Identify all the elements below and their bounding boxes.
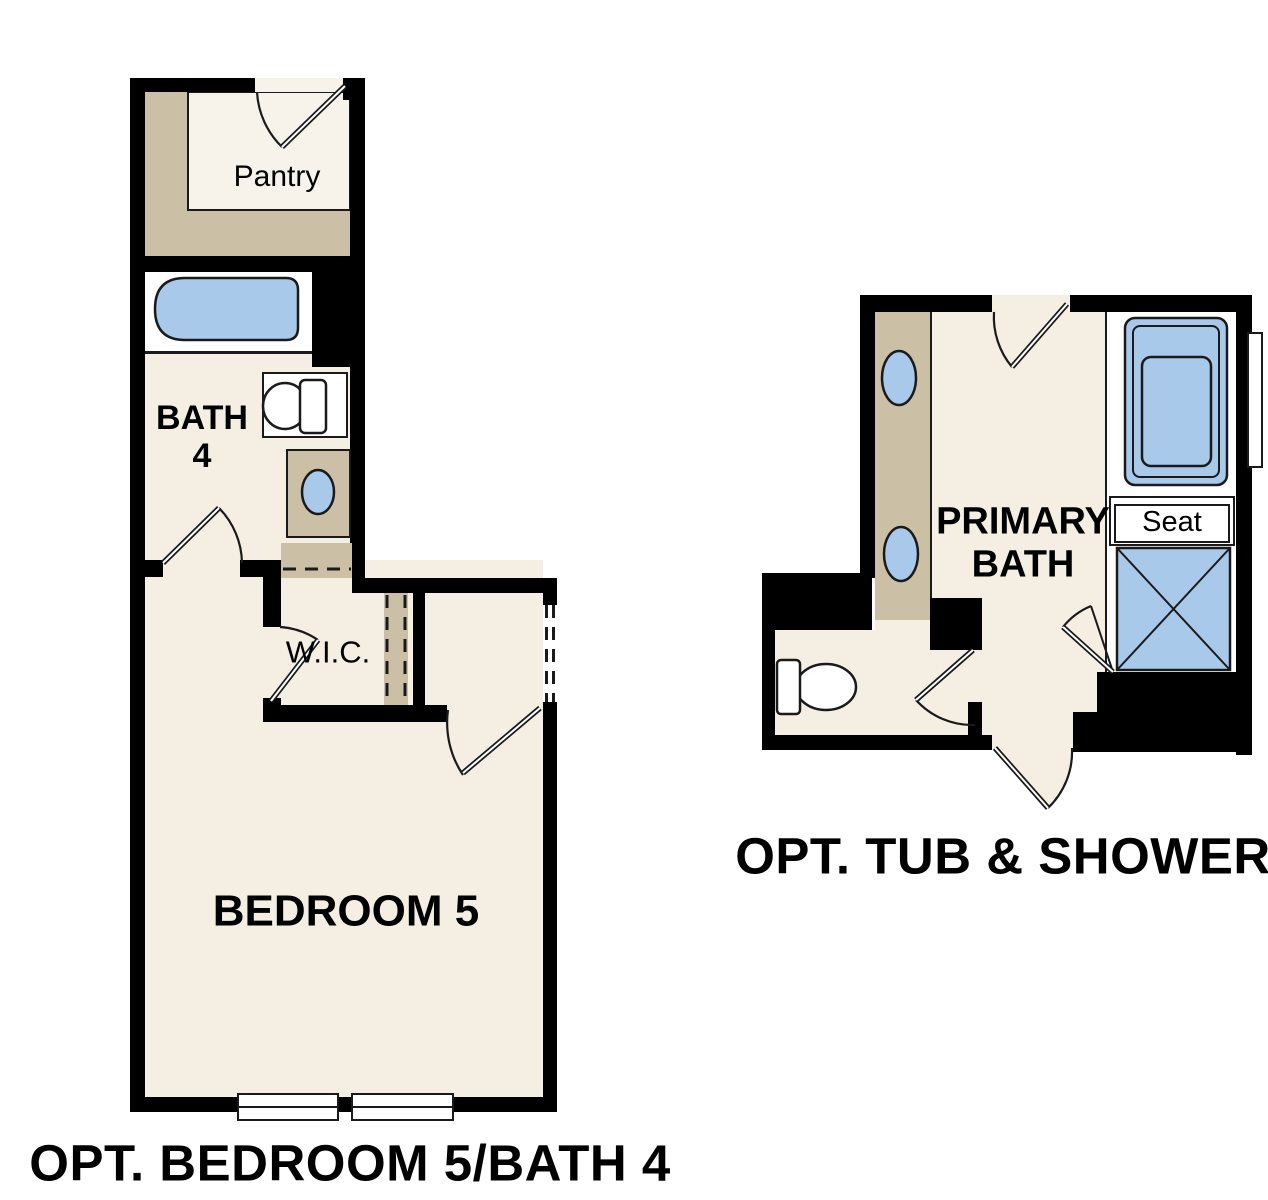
cased-opening (543, 605, 557, 702)
primary-bath-label: PRIMARY BATH (936, 500, 1110, 585)
floorplan-drawing (0, 0, 1268, 1200)
tub-alcove-edge (145, 351, 312, 354)
left-plan-title: OPT. BEDROOM 5/BATH 4 (29, 1134, 670, 1191)
toilet-fixture (777, 660, 856, 714)
bedroom5-label: BEDROOM 5 (213, 886, 479, 935)
garden-tub-fixture (1125, 318, 1227, 485)
exterior-door-opening (992, 735, 1073, 750)
wic-closet-rod (384, 593, 408, 705)
shower-fixture (1117, 548, 1230, 670)
bathtub-fixture (155, 278, 298, 340)
right-plan-title: OPT. TUB & SHOWER (735, 827, 1268, 884)
pantry-door-opening (255, 78, 343, 92)
sink-fixture (884, 527, 918, 581)
sink-fixture (302, 470, 334, 514)
left-floorplan (130, 78, 557, 1120)
wic-label: W.I.C. (286, 636, 370, 671)
floorplan-page: Pantry BATH 4 W.I.C. BEDROOM 5 OPT. BEDR… (0, 0, 1268, 1200)
sink-fixture (882, 351, 916, 405)
wic-shelf (281, 543, 352, 578)
pantry-label: Pantry (234, 160, 321, 194)
toilet-fixture (263, 380, 326, 433)
primary-bath-door-opening (992, 295, 1070, 312)
seat-label: Seat (1142, 506, 1202, 538)
window (1248, 333, 1262, 467)
bath4-label: BATH 4 (156, 399, 248, 475)
